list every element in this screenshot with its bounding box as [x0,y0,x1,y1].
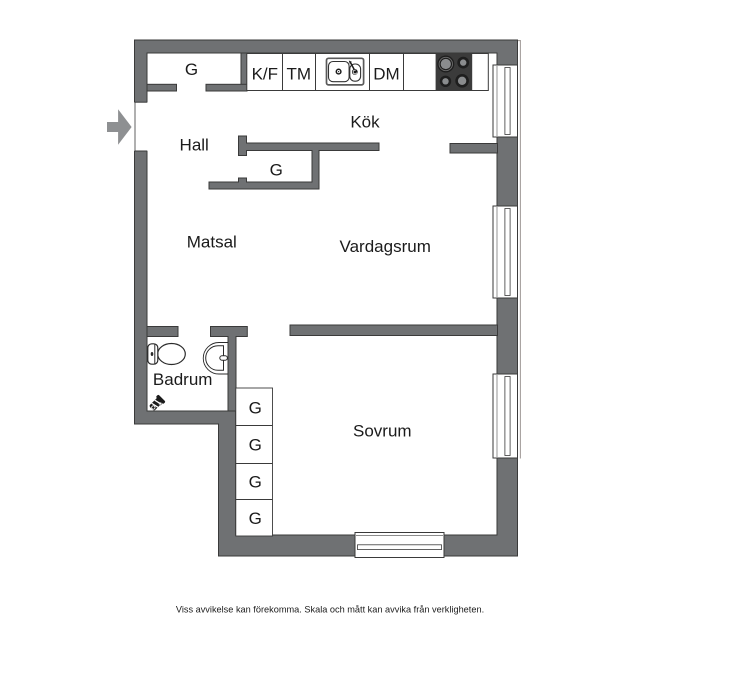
svg-text:Vardagsrum: Vardagsrum [340,237,431,256]
svg-text:TM: TM [287,65,312,84]
svg-text:DM: DM [373,65,399,84]
svg-text:Kök: Kök [350,113,380,132]
svg-text:Sovrum: Sovrum [353,422,412,441]
svg-text:G: G [249,473,262,492]
svg-text:Hall: Hall [180,136,209,155]
svg-text:K/F: K/F [252,65,278,84]
svg-text:G: G [249,399,262,418]
svg-text:Viss avvikelse kan förekomma.: Viss avvikelse kan förekomma. Skala och … [176,605,484,615]
svg-text:G: G [249,509,262,528]
svg-text:G: G [270,161,283,180]
svg-text:Matsal: Matsal [187,232,237,251]
svg-text:G: G [249,436,262,455]
svg-text:Badrum: Badrum [153,370,213,389]
svg-text:G: G [185,60,198,79]
